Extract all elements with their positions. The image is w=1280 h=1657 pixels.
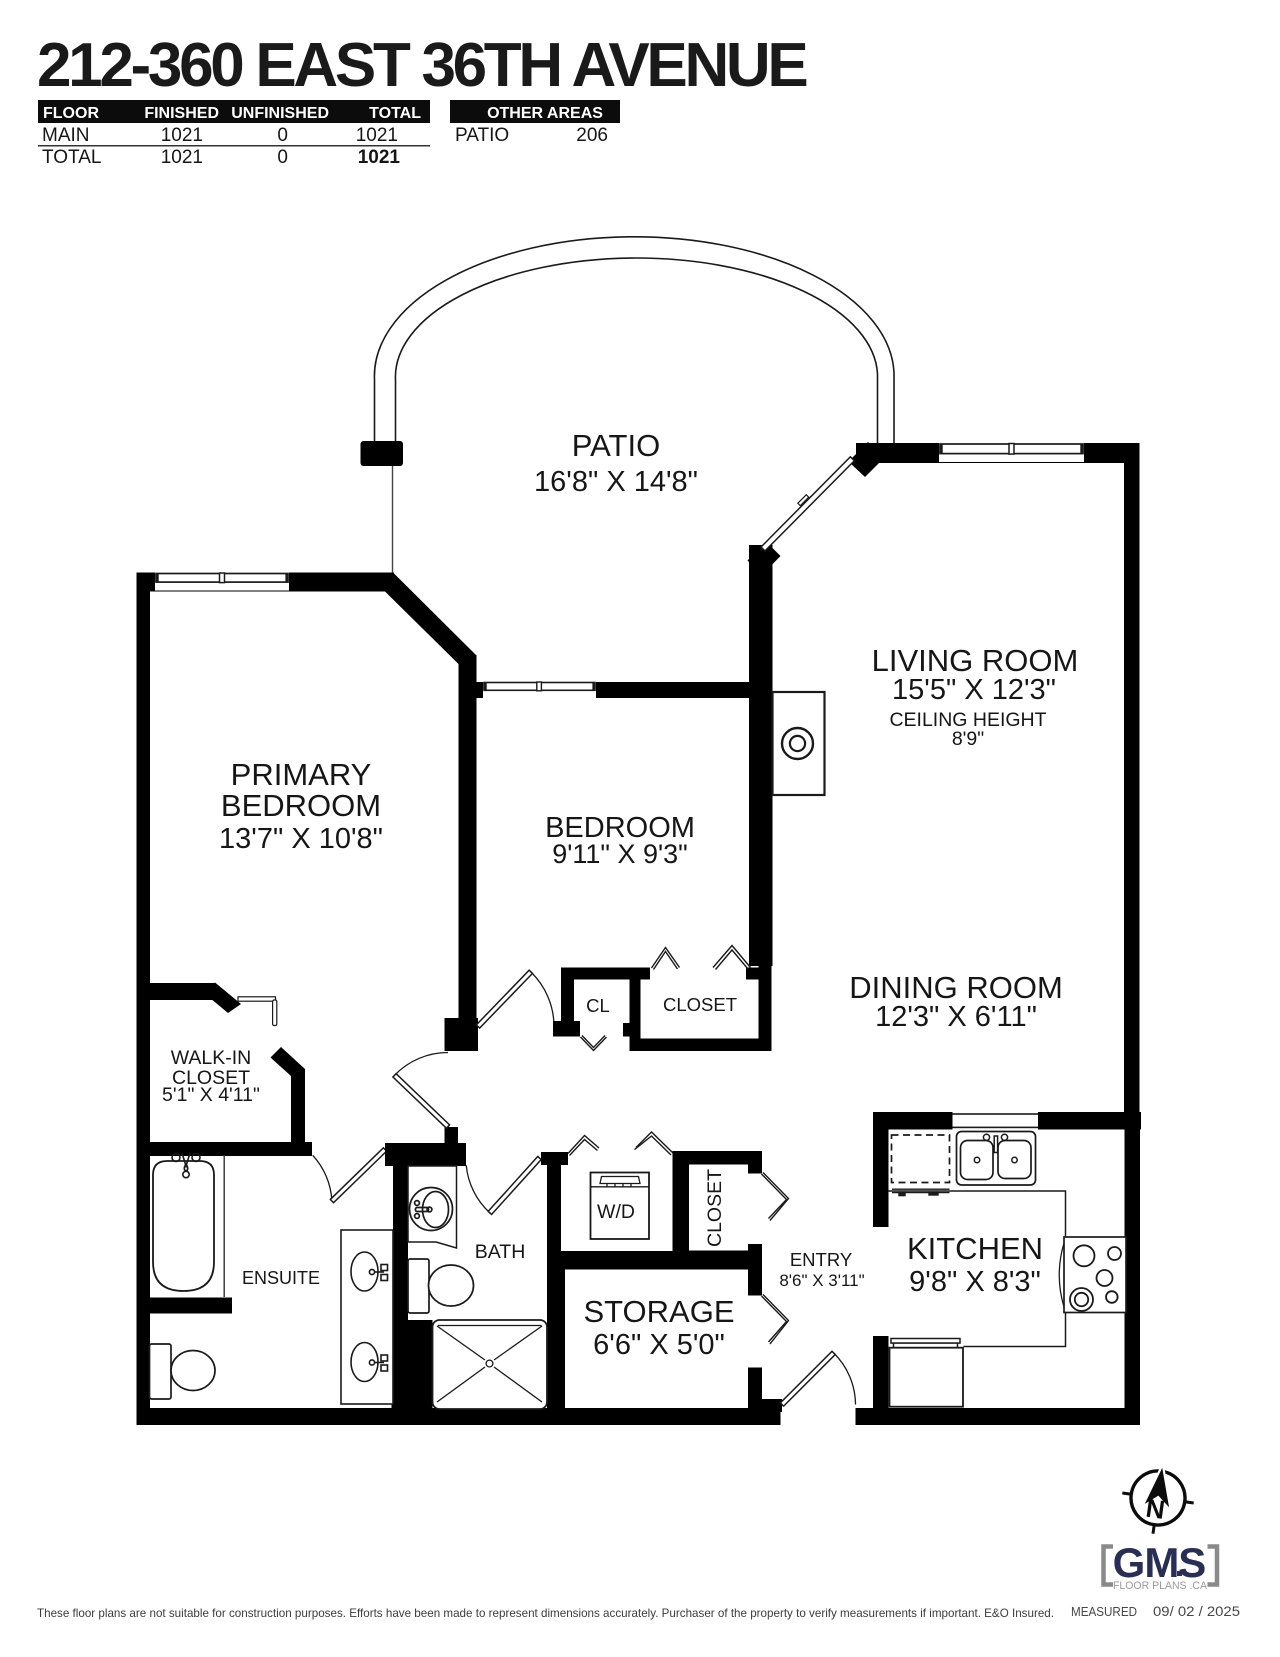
svg-text:8'6" X 3'11": 8'6" X 3'11" xyxy=(779,1271,864,1290)
svg-text:9'8" X 8'3": 9'8" X 8'3" xyxy=(909,1266,1041,1298)
svg-text:ENSUITE: ENSUITE xyxy=(242,1268,320,1288)
svg-text:CLOSET: CLOSET xyxy=(663,994,737,1015)
svg-text:13'7" X 10'8": 13'7" X 10'8" xyxy=(219,823,383,855)
svg-text:OTHER AREAS: OTHER AREAS xyxy=(487,105,603,122)
svg-text:0: 0 xyxy=(277,147,288,168)
svg-text:WALK-IN: WALK-IN xyxy=(171,1047,252,1069)
svg-text:STORAGE: STORAGE xyxy=(583,1294,734,1329)
svg-text:9'11" X 9'3": 9'11" X 9'3" xyxy=(552,839,688,869)
svg-text:CL: CL xyxy=(586,995,610,1016)
svg-text:206: 206 xyxy=(576,125,608,146)
svg-text:UNFINISHED: UNFINISHED xyxy=(231,105,329,122)
svg-text:BATH: BATH xyxy=(475,1241,526,1263)
svg-text:FLOOR PLANS .CA: FLOOR PLANS .CA xyxy=(1113,1580,1208,1592)
svg-text:1021: 1021 xyxy=(161,147,203,168)
svg-text:1021: 1021 xyxy=(358,147,401,168)
svg-text:212-360 EAST 36TH AVENUE: 212-360 EAST 36TH AVENUE xyxy=(37,31,806,100)
svg-text:8'9": 8'9" xyxy=(952,728,984,750)
svg-text:6'6" X 5'0": 6'6" X 5'0" xyxy=(593,1329,725,1361)
svg-text:TOTAL: TOTAL xyxy=(369,105,421,122)
svg-text:CLOSET: CLOSET xyxy=(704,1169,726,1247)
svg-text:09/ 02 / 2025: 09/ 02 / 2025 xyxy=(1153,1604,1240,1619)
svg-text:0: 0 xyxy=(277,125,288,146)
svg-text:12'3" X 6'11": 12'3" X 6'11" xyxy=(875,1001,1037,1033)
svg-text:LIVING ROOM: LIVING ROOM xyxy=(872,643,1079,678)
svg-text:DINING ROOM: DINING ROOM xyxy=(849,970,1063,1005)
svg-text:MEASURED: MEASURED xyxy=(1071,1604,1137,1619)
svg-text:PATIO: PATIO xyxy=(455,125,509,146)
svg-text:PRIMARY: PRIMARY xyxy=(231,757,372,792)
svg-text:GMS: GMS xyxy=(1113,1539,1206,1586)
svg-text:5'1" X 4'11": 5'1" X 4'11" xyxy=(162,1084,260,1106)
svg-text:15'5" X 12'3": 15'5" X 12'3" xyxy=(892,674,1056,706)
svg-text:These floor plans are not suit: These floor plans are not suitable for c… xyxy=(37,1607,1054,1620)
svg-text:ENTRY: ENTRY xyxy=(790,1249,852,1270)
svg-text:1021: 1021 xyxy=(161,125,203,146)
svg-text:KITCHEN: KITCHEN xyxy=(907,1231,1043,1266)
svg-text:TOTAL: TOTAL xyxy=(42,147,101,168)
svg-text:MAIN: MAIN xyxy=(42,125,90,146)
svg-text:W/D: W/D xyxy=(597,1201,635,1223)
svg-text:BEDROOM: BEDROOM xyxy=(221,788,381,823)
svg-text:1021: 1021 xyxy=(356,125,398,146)
svg-text:FINISHED: FINISHED xyxy=(144,105,219,122)
svg-text:16'8" X 14'8": 16'8" X 14'8" xyxy=(534,466,698,498)
svg-text:FLOOR: FLOOR xyxy=(43,105,99,122)
svg-text:PATIO: PATIO xyxy=(572,428,660,463)
